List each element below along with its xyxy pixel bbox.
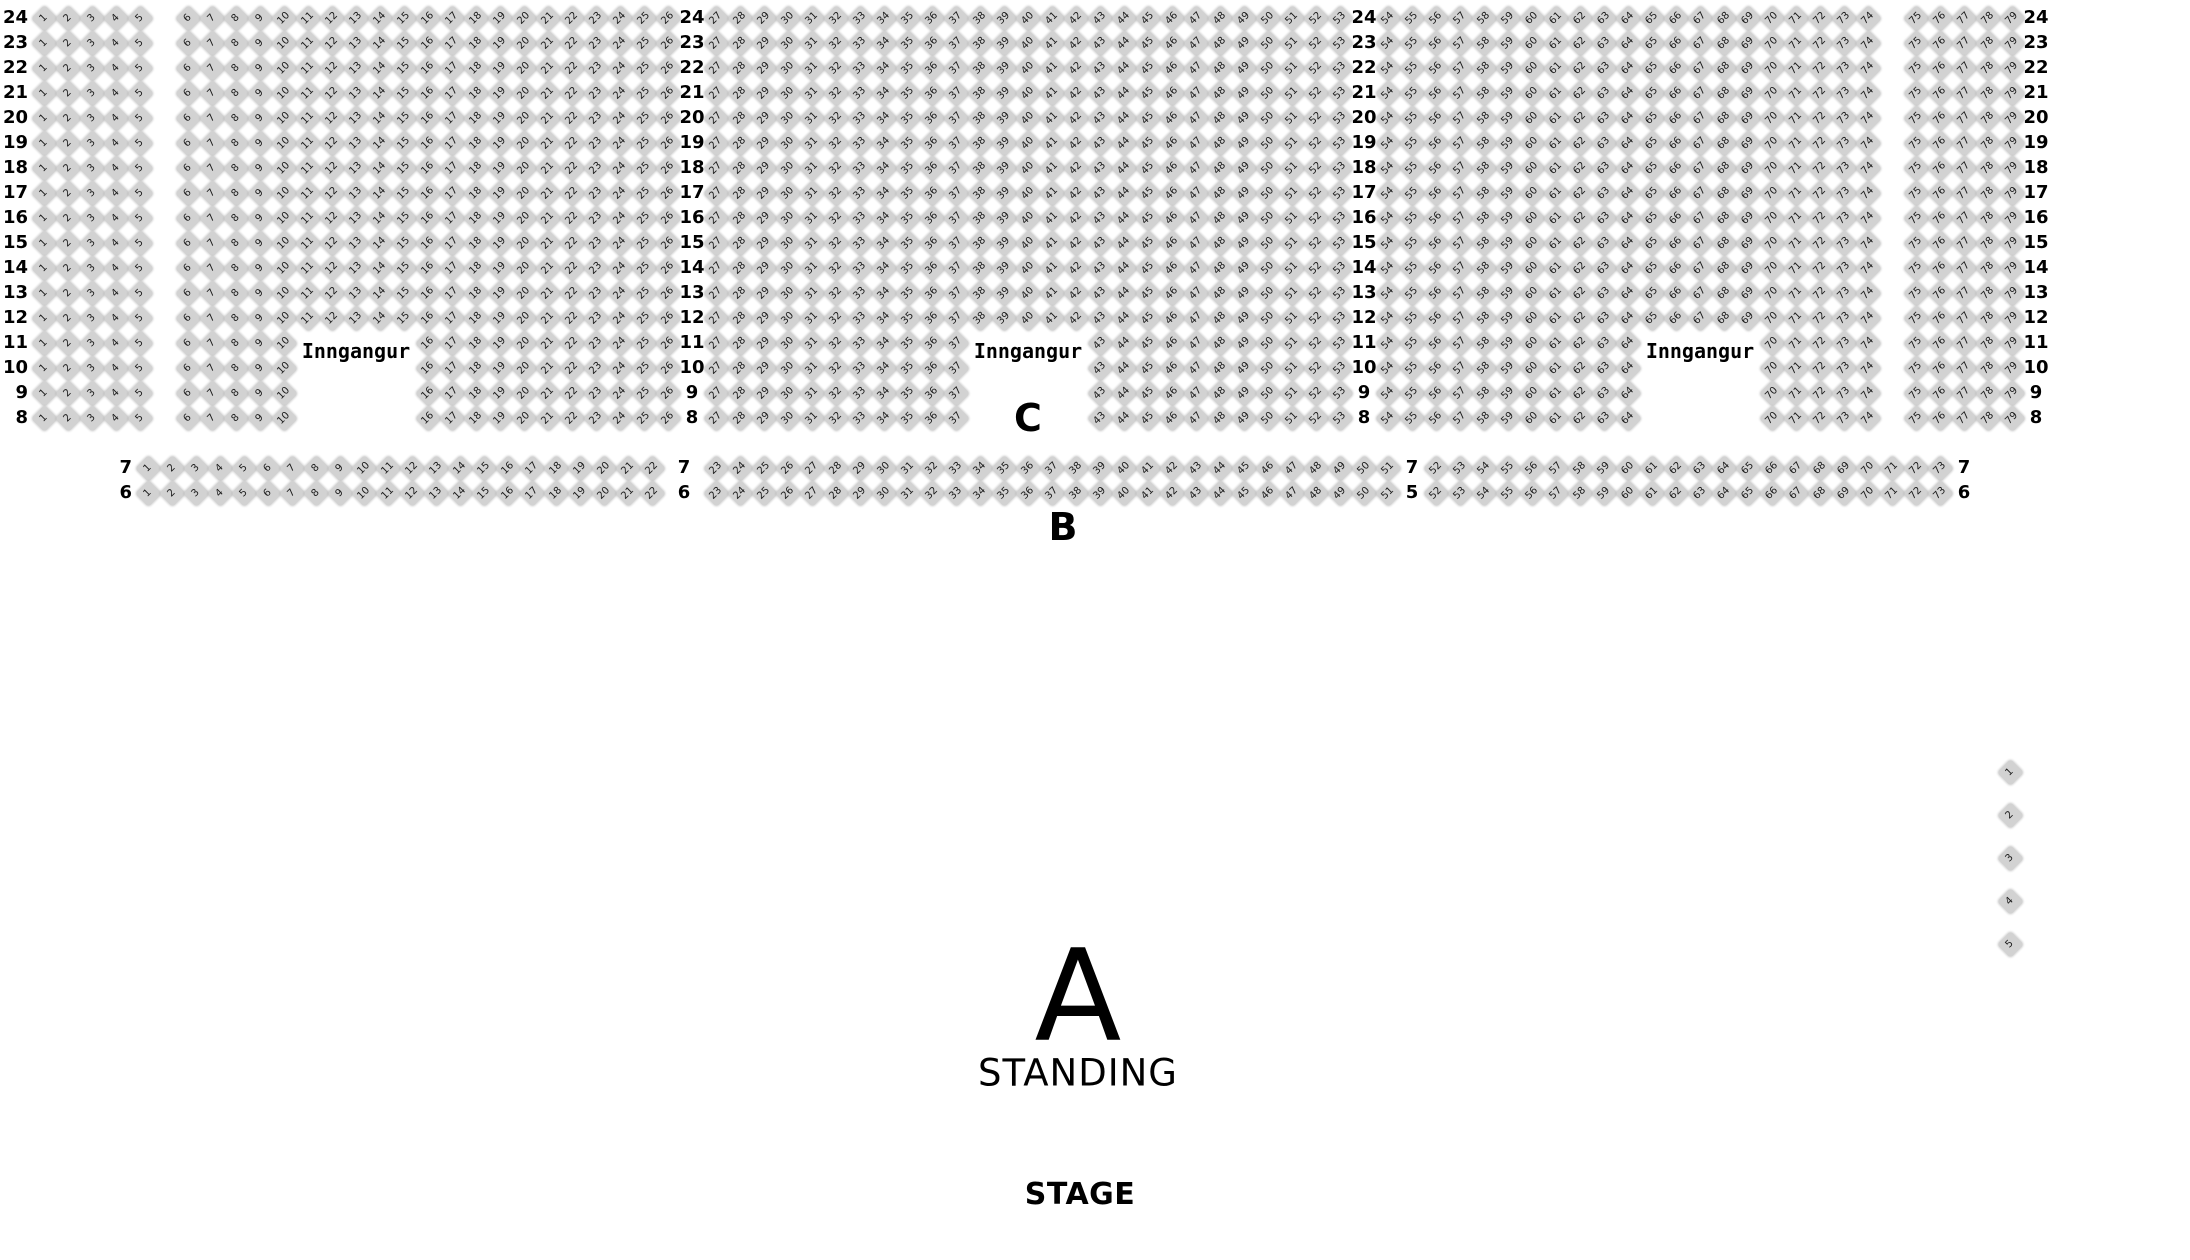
seat[interactable]: 61 — [1543, 230, 1570, 257]
seat[interactable]: 42 — [1063, 280, 1090, 307]
seat[interactable]: 19 — [487, 80, 514, 107]
seat[interactable]: 37 — [943, 405, 970, 432]
seat[interactable]: 75 — [1903, 30, 1930, 57]
seat[interactable]: 76 — [1927, 155, 1954, 182]
seat[interactable]: 76 — [1927, 80, 1954, 107]
seat[interactable]: 6 — [175, 180, 202, 207]
seat[interactable]: 20 — [591, 455, 618, 482]
seat[interactable]: 4 — [103, 80, 130, 107]
seat[interactable]: 41 — [1039, 255, 1066, 282]
seat[interactable]: 16 — [415, 305, 442, 332]
seat[interactable]: 26 — [775, 455, 802, 482]
seat[interactable]: 68 — [1711, 255, 1738, 282]
seat[interactable]: 48 — [1207, 5, 1234, 32]
seat[interactable]: 1 — [31, 330, 58, 357]
seat[interactable]: 4 — [103, 405, 130, 432]
seat[interactable]: 21 — [535, 355, 562, 382]
seat[interactable]: 30 — [775, 305, 802, 332]
seat[interactable]: 79 — [1999, 230, 2026, 257]
seat[interactable]: 1 — [31, 30, 58, 57]
seat[interactable]: 1 — [31, 180, 58, 207]
seat[interactable]: 74 — [1855, 80, 1882, 107]
seat[interactable]: 64 — [1615, 180, 1642, 207]
seat[interactable]: 26 — [655, 330, 682, 357]
seat[interactable]: 39 — [991, 30, 1018, 57]
seat[interactable]: 46 — [1159, 355, 1186, 382]
seat[interactable]: 37 — [943, 255, 970, 282]
seat[interactable]: 73 — [1927, 455, 1954, 482]
seat[interactable]: 58 — [1471, 155, 1498, 182]
seat[interactable]: 40 — [1015, 80, 1042, 107]
seat[interactable]: 17 — [439, 155, 466, 182]
seat[interactable]: 61 — [1639, 455, 1666, 482]
seat[interactable]: 52 — [1303, 355, 1330, 382]
seat[interactable]: 64 — [1615, 255, 1642, 282]
seat[interactable]: 2 — [55, 405, 82, 432]
seat[interactable]: 74 — [1855, 355, 1882, 382]
seat[interactable]: 50 — [1255, 205, 1282, 232]
seat[interactable]: 57 — [1447, 155, 1474, 182]
seat[interactable]: 6 — [175, 405, 202, 432]
seat[interactable]: 29 — [751, 30, 778, 57]
seat[interactable]: 1 — [31, 230, 58, 257]
seat[interactable]: 77 — [1951, 380, 1978, 407]
seat[interactable]: 6 — [175, 305, 202, 332]
seat[interactable]: 26 — [655, 405, 682, 432]
seat[interactable]: 43 — [1087, 330, 1114, 357]
seat[interactable]: 70 — [1759, 230, 1786, 257]
seat[interactable]: 74 — [1855, 305, 1882, 332]
seat[interactable]: 34 — [871, 30, 898, 57]
seat[interactable]: 17 — [439, 255, 466, 282]
seat[interactable]: 55 — [1399, 130, 1426, 157]
seat[interactable]: 6 — [175, 80, 202, 107]
seat[interactable]: 3 — [79, 305, 106, 332]
seat[interactable]: 74 — [1855, 405, 1882, 432]
seat[interactable]: 40 — [1111, 480, 1138, 507]
seat[interactable]: 77 — [1951, 130, 1978, 157]
seat[interactable]: 12 — [319, 55, 346, 82]
seat[interactable]: 39 — [991, 105, 1018, 132]
seat[interactable]: 42 — [1063, 230, 1090, 257]
seat[interactable]: 1 — [31, 155, 58, 182]
seat[interactable]: 69 — [1735, 80, 1762, 107]
seat[interactable]: 4 — [103, 380, 130, 407]
seat[interactable]: 30 — [775, 330, 802, 357]
seat[interactable]: 76 — [1927, 230, 1954, 257]
seat[interactable]: 57 — [1447, 130, 1474, 157]
seat[interactable]: 33 — [847, 80, 874, 107]
seat[interactable]: 35 — [895, 130, 922, 157]
seat[interactable]: 58 — [1471, 80, 1498, 107]
seat[interactable]: 13 — [343, 155, 370, 182]
seat[interactable]: 79 — [1999, 5, 2026, 32]
seat[interactable]: 49 — [1231, 280, 1258, 307]
seat[interactable]: 5 — [127, 355, 154, 382]
seat[interactable]: 4 — [103, 30, 130, 57]
seat[interactable]: 2 — [55, 205, 82, 232]
seat[interactable]: 75 — [1903, 130, 1930, 157]
seat[interactable]: 25 — [631, 405, 658, 432]
seat[interactable]: 68 — [1711, 305, 1738, 332]
seat[interactable]: 60 — [1519, 105, 1546, 132]
seat[interactable]: 20 — [511, 230, 538, 257]
seat[interactable]: 8 — [303, 455, 330, 482]
seat[interactable]: 64 — [1711, 480, 1738, 507]
seat[interactable]: 17 — [439, 105, 466, 132]
seat[interactable]: 36 — [919, 130, 946, 157]
seat[interactable]: 29 — [751, 305, 778, 332]
seat[interactable]: 58 — [1471, 5, 1498, 32]
seat[interactable]: 33 — [847, 405, 874, 432]
seat[interactable]: 38 — [1063, 480, 1090, 507]
seat[interactable]: 4 — [103, 5, 130, 32]
seat[interactable]: 3 — [79, 5, 106, 32]
seat[interactable]: 30 — [775, 30, 802, 57]
seat[interactable]: 44 — [1111, 80, 1138, 107]
seat[interactable]: 78 — [1975, 380, 2002, 407]
seat[interactable]: 71 — [1783, 255, 1810, 282]
seat[interactable]: 70 — [1759, 5, 1786, 32]
seat[interactable]: 3 — [79, 105, 106, 132]
seat[interactable]: 49 — [1231, 205, 1258, 232]
seat[interactable]: 55 — [1399, 230, 1426, 257]
seat[interactable]: 17 — [439, 130, 466, 157]
seat[interactable]: 33 — [847, 155, 874, 182]
seat[interactable]: 55 — [1399, 355, 1426, 382]
seat[interactable]: 59 — [1495, 330, 1522, 357]
seat[interactable]: 3 — [79, 55, 106, 82]
seat[interactable]: 4 — [103, 205, 130, 232]
seat[interactable]: 60 — [1519, 230, 1546, 257]
seat[interactable]: 70 — [1759, 30, 1786, 57]
seat[interactable]: 51 — [1279, 5, 1306, 32]
seat[interactable]: 56 — [1423, 255, 1450, 282]
seat[interactable]: 66 — [1663, 255, 1690, 282]
seat[interactable]: 28 — [727, 380, 754, 407]
seat[interactable]: 73 — [1927, 480, 1954, 507]
seat[interactable]: 43 — [1087, 30, 1114, 57]
seat[interactable]: 77 — [1951, 355, 1978, 382]
seat[interactable]: 49 — [1231, 405, 1258, 432]
seat[interactable]: 3 — [183, 455, 210, 482]
seat[interactable]: 32 — [823, 55, 850, 82]
seat[interactable]: 71 — [1783, 5, 1810, 32]
seat[interactable]: 2 — [55, 180, 82, 207]
seat[interactable]: 56 — [1519, 480, 1546, 507]
seat[interactable]: 11 — [295, 230, 322, 257]
seat[interactable]: 21 — [535, 155, 562, 182]
seat[interactable]: 26 — [655, 255, 682, 282]
seat[interactable]: 1 — [1997, 759, 2024, 786]
seat[interactable]: 28 — [727, 180, 754, 207]
seat[interactable]: 7 — [199, 230, 226, 257]
seat[interactable]: 61 — [1543, 5, 1570, 32]
seat[interactable]: 7 — [199, 80, 226, 107]
seat[interactable]: 27 — [703, 355, 730, 382]
seat[interactable]: 5 — [231, 480, 258, 507]
seat[interactable]: 49 — [1231, 305, 1258, 332]
seat[interactable]: 79 — [1999, 80, 2026, 107]
seat[interactable]: 58 — [1471, 55, 1498, 82]
seat[interactable]: 74 — [1855, 230, 1882, 257]
seat[interactable]: 27 — [703, 230, 730, 257]
seat[interactable]: 54 — [1375, 130, 1402, 157]
seat[interactable]: 48 — [1207, 255, 1234, 282]
seat[interactable]: 12 — [319, 30, 346, 57]
seat[interactable]: 33 — [847, 130, 874, 157]
seat[interactable]: 62 — [1567, 305, 1594, 332]
seat[interactable]: 53 — [1327, 405, 1354, 432]
seat[interactable]: 38 — [967, 30, 994, 57]
seat[interactable]: 45 — [1135, 105, 1162, 132]
seat[interactable]: 32 — [919, 455, 946, 482]
seat[interactable]: 18 — [463, 230, 490, 257]
seat[interactable]: 12 — [319, 105, 346, 132]
seat[interactable]: 8 — [223, 155, 250, 182]
seat[interactable]: 60 — [1519, 280, 1546, 307]
seat[interactable]: 43 — [1087, 230, 1114, 257]
seat[interactable]: 55 — [1495, 455, 1522, 482]
seat[interactable]: 70 — [1759, 355, 1786, 382]
seat[interactable]: 56 — [1423, 130, 1450, 157]
seat[interactable]: 40 — [1015, 255, 1042, 282]
seat[interactable]: 73 — [1831, 155, 1858, 182]
seat[interactable]: 68 — [1711, 5, 1738, 32]
seat[interactable]: 51 — [1279, 255, 1306, 282]
seat[interactable]: 30 — [775, 55, 802, 82]
seat[interactable]: 34 — [871, 155, 898, 182]
seat[interactable]: 51 — [1279, 55, 1306, 82]
seat[interactable]: 54 — [1375, 5, 1402, 32]
seat[interactable]: 7 — [199, 180, 226, 207]
seat[interactable]: 3 — [79, 255, 106, 282]
seat[interactable]: 52 — [1303, 380, 1330, 407]
seat[interactable]: 2 — [55, 330, 82, 357]
seat[interactable]: 65 — [1639, 280, 1666, 307]
seat[interactable]: 44 — [1111, 380, 1138, 407]
seat[interactable]: 72 — [1807, 80, 1834, 107]
seat[interactable]: 61 — [1543, 180, 1570, 207]
seat[interactable]: 60 — [1615, 455, 1642, 482]
seat[interactable]: 23 — [583, 55, 610, 82]
seat[interactable]: 35 — [895, 355, 922, 382]
seat[interactable]: 60 — [1519, 30, 1546, 57]
seat[interactable]: 18 — [463, 105, 490, 132]
seat[interactable]: 5 — [127, 30, 154, 57]
seat[interactable]: 27 — [703, 405, 730, 432]
seat[interactable]: 22 — [559, 255, 586, 282]
seat[interactable]: 28 — [727, 230, 754, 257]
seat[interactable]: 24 — [607, 205, 634, 232]
seat[interactable]: 35 — [895, 155, 922, 182]
seat[interactable]: 9 — [327, 480, 354, 507]
seat[interactable]: 51 — [1279, 80, 1306, 107]
seat[interactable]: 21 — [615, 480, 642, 507]
seat[interactable]: 7 — [199, 330, 226, 357]
seat[interactable]: 19 — [487, 105, 514, 132]
seat[interactable]: 75 — [1903, 80, 1930, 107]
seat[interactable]: 65 — [1639, 130, 1666, 157]
seat[interactable]: 29 — [751, 230, 778, 257]
seat[interactable]: 31 — [799, 205, 826, 232]
seat[interactable]: 34 — [871, 330, 898, 357]
seat[interactable]: 7 — [199, 55, 226, 82]
seat[interactable]: 10 — [271, 80, 298, 107]
seat[interactable]: 38 — [967, 205, 994, 232]
seat[interactable]: 11 — [295, 205, 322, 232]
seat[interactable]: 61 — [1543, 80, 1570, 107]
seat[interactable]: 64 — [1615, 355, 1642, 382]
seat[interactable]: 73 — [1831, 180, 1858, 207]
seat[interactable]: 40 — [1015, 280, 1042, 307]
seat[interactable]: 37 — [943, 330, 970, 357]
seat[interactable]: 2 — [1997, 802, 2024, 829]
seat[interactable]: 26 — [655, 55, 682, 82]
seat[interactable]: 13 — [343, 305, 370, 332]
seat[interactable]: 5 — [127, 180, 154, 207]
seat[interactable]: 8 — [223, 105, 250, 132]
seat[interactable]: 40 — [1111, 455, 1138, 482]
seat[interactable]: 23 — [583, 280, 610, 307]
seat[interactable]: 58 — [1471, 355, 1498, 382]
seat[interactable]: 67 — [1687, 305, 1714, 332]
seat[interactable]: 16 — [415, 355, 442, 382]
seat[interactable]: 25 — [631, 80, 658, 107]
seat[interactable]: 63 — [1591, 380, 1618, 407]
seat[interactable]: 4 — [103, 305, 130, 332]
seat[interactable]: 2 — [55, 305, 82, 332]
seat[interactable]: 70 — [1759, 255, 1786, 282]
seat[interactable]: 23 — [583, 405, 610, 432]
seat[interactable]: 55 — [1399, 280, 1426, 307]
seat[interactable]: 16 — [415, 230, 442, 257]
seat[interactable]: 15 — [391, 280, 418, 307]
seat[interactable]: 72 — [1807, 380, 1834, 407]
seat[interactable]: 62 — [1567, 55, 1594, 82]
seat[interactable]: 12 — [319, 155, 346, 182]
seat[interactable]: 78 — [1975, 5, 2002, 32]
seat[interactable]: 36 — [919, 205, 946, 232]
seat[interactable]: 76 — [1927, 55, 1954, 82]
seat[interactable]: 65 — [1639, 5, 1666, 32]
seat[interactable]: 1 — [31, 405, 58, 432]
seat[interactable]: 32 — [823, 280, 850, 307]
seat[interactable]: 5 — [231, 455, 258, 482]
seat[interactable]: 21 — [535, 55, 562, 82]
seat[interactable]: 65 — [1735, 455, 1762, 482]
seat[interactable]: 57 — [1447, 305, 1474, 332]
seat[interactable]: 46 — [1159, 130, 1186, 157]
seat[interactable]: 67 — [1783, 480, 1810, 507]
seat[interactable]: 10 — [271, 130, 298, 157]
seat[interactable]: 10 — [271, 205, 298, 232]
seat[interactable]: 69 — [1735, 280, 1762, 307]
seat[interactable]: 45 — [1135, 305, 1162, 332]
seat[interactable]: 1 — [31, 380, 58, 407]
seat[interactable]: 59 — [1495, 155, 1522, 182]
seat[interactable]: 22 — [559, 5, 586, 32]
seat[interactable]: 30 — [775, 355, 802, 382]
seat[interactable]: 56 — [1423, 80, 1450, 107]
seat[interactable]: 69 — [1735, 205, 1762, 232]
seat[interactable]: 54 — [1375, 155, 1402, 182]
seat[interactable]: 13 — [423, 480, 450, 507]
seat[interactable]: 61 — [1543, 330, 1570, 357]
seat[interactable]: 32 — [919, 480, 946, 507]
seat[interactable]: 52 — [1303, 280, 1330, 307]
seat[interactable]: 59 — [1495, 105, 1522, 132]
seat[interactable]: 35 — [895, 380, 922, 407]
seat[interactable]: 5 — [127, 230, 154, 257]
seat[interactable]: 76 — [1927, 130, 1954, 157]
seat[interactable]: 15 — [391, 55, 418, 82]
seat[interactable]: 6 — [255, 455, 282, 482]
seat[interactable]: 40 — [1015, 155, 1042, 182]
seat[interactable]: 43 — [1183, 455, 1210, 482]
seat[interactable]: 14 — [367, 105, 394, 132]
seat[interactable]: 68 — [1711, 105, 1738, 132]
seat[interactable]: 41 — [1039, 205, 1066, 232]
seat[interactable]: 18 — [463, 355, 490, 382]
seat[interactable]: 79 — [1999, 55, 2026, 82]
seat[interactable]: 38 — [967, 180, 994, 207]
seat[interactable]: 66 — [1663, 130, 1690, 157]
seat[interactable]: 62 — [1567, 380, 1594, 407]
seat[interactable]: 32 — [823, 305, 850, 332]
seat[interactable]: 78 — [1975, 255, 2002, 282]
seat[interactable]: 11 — [295, 155, 322, 182]
seat[interactable]: 26 — [655, 355, 682, 382]
seat[interactable]: 57 — [1447, 380, 1474, 407]
seat[interactable]: 31 — [799, 405, 826, 432]
seat[interactable]: 76 — [1927, 30, 1954, 57]
seat[interactable]: 72 — [1807, 330, 1834, 357]
seat[interactable]: 61 — [1543, 130, 1570, 157]
seat[interactable]: 57 — [1447, 230, 1474, 257]
seat[interactable]: 8 — [223, 180, 250, 207]
seat[interactable]: 56 — [1423, 30, 1450, 57]
seat[interactable]: 73 — [1831, 355, 1858, 382]
seat[interactable]: 78 — [1975, 130, 2002, 157]
seat[interactable]: 37 — [943, 5, 970, 32]
seat[interactable]: 24 — [607, 55, 634, 82]
seat[interactable]: 61 — [1543, 30, 1570, 57]
seat[interactable]: 63 — [1591, 180, 1618, 207]
seat[interactable]: 9 — [247, 180, 274, 207]
seat[interactable]: 62 — [1567, 155, 1594, 182]
seat[interactable]: 54 — [1375, 305, 1402, 332]
seat[interactable]: 43 — [1183, 480, 1210, 507]
seat[interactable]: 26 — [655, 30, 682, 57]
seat[interactable]: 56 — [1423, 355, 1450, 382]
seat[interactable]: 50 — [1255, 5, 1282, 32]
seat[interactable]: 27 — [703, 130, 730, 157]
seat[interactable]: 32 — [823, 230, 850, 257]
seat[interactable]: 43 — [1087, 380, 1114, 407]
seat[interactable]: 2 — [55, 230, 82, 257]
seat[interactable]: 72 — [1807, 30, 1834, 57]
seat[interactable]: 49 — [1327, 455, 1354, 482]
seat[interactable]: 63 — [1591, 155, 1618, 182]
seat[interactable]: 29 — [751, 130, 778, 157]
seat[interactable]: 22 — [559, 130, 586, 157]
seat[interactable]: 41 — [1039, 155, 1066, 182]
seat[interactable]: 9 — [247, 355, 274, 382]
seat[interactable]: 62 — [1567, 180, 1594, 207]
seat[interactable]: 23 — [703, 480, 730, 507]
seat[interactable]: 12 — [319, 255, 346, 282]
